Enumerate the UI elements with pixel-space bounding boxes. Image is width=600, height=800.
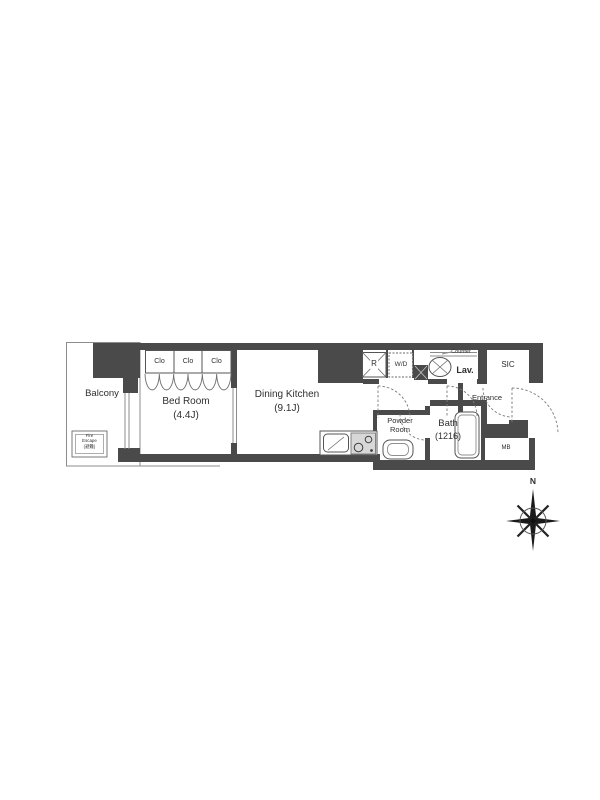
compass-center [530, 518, 535, 523]
wall-lav-sic [478, 350, 487, 383]
floor-plan-page: Balcony Fire Escape (避難) Clo Clo Clo Bed… [0, 0, 600, 800]
compass-rose [506, 489, 560, 551]
closet-1-label: Clo [154, 358, 165, 366]
wall-bottom-right [373, 460, 535, 470]
closet-boxes [145, 351, 231, 390]
bath-size: (1216) [435, 432, 461, 442]
wall-powder-bath-a [425, 406, 430, 415]
powder-room-label-2: Room [390, 426, 410, 434]
wall-top [93, 343, 543, 350]
floor-plan-drawing [0, 0, 600, 800]
closet-door-fans [145, 374, 231, 390]
fire-escape-line3: (避難) [84, 445, 96, 450]
wall-bed-dk-nub [231, 443, 237, 454]
wall-bath-right [481, 400, 487, 424]
bath-label: Bath [438, 419, 458, 429]
wall-entrance-post [509, 420, 528, 438]
closet-3-label: Clo [211, 358, 222, 366]
wall-powder-bath-b [425, 438, 430, 462]
wall-mb-left [481, 438, 485, 462]
balcony-window [125, 393, 129, 449]
lavatory-label: Lav. [456, 366, 473, 376]
wall-sep-r [360, 350, 362, 378]
washer-dryer-label: W/D [395, 361, 408, 368]
wall-powder-top [373, 410, 430, 415]
bedroom-size: (4.4J) [173, 410, 199, 421]
wall-sic-right [529, 350, 543, 383]
wall-balcony-strip [123, 378, 138, 393]
stove-knob [370, 449, 373, 452]
balcony-label: Balcony [85, 389, 119, 399]
wall-below-entrance [481, 424, 509, 438]
refrigerator-label: R [370, 360, 378, 369]
sic-label: SIC [501, 361, 514, 370]
compass-north-label: N [530, 477, 536, 486]
bedroom-sliding-door [233, 388, 237, 443]
kitchen-counter [320, 431, 377, 455]
dining-kitchen-size: (9.1J) [274, 403, 300, 414]
counter-label: Counter [451, 349, 471, 355]
powder-room-label-1: Powder [387, 417, 412, 425]
wall-bed-dk [231, 350, 237, 388]
closet-2-label: Clo [183, 358, 194, 366]
wall-topleft-chunk [93, 350, 140, 378]
wall-duct-nub [363, 379, 379, 384]
meter-box-label: MB [502, 445, 511, 452]
dining-kitchen-label: Dining Kitchen [255, 389, 319, 400]
bedroom-label: Bed Room [162, 396, 209, 407]
wall-duct [318, 350, 363, 383]
powder-room-fixture [383, 440, 413, 459]
entrance-label: Entrance [472, 394, 502, 402]
wall-lav-bottom-a [428, 379, 447, 384]
